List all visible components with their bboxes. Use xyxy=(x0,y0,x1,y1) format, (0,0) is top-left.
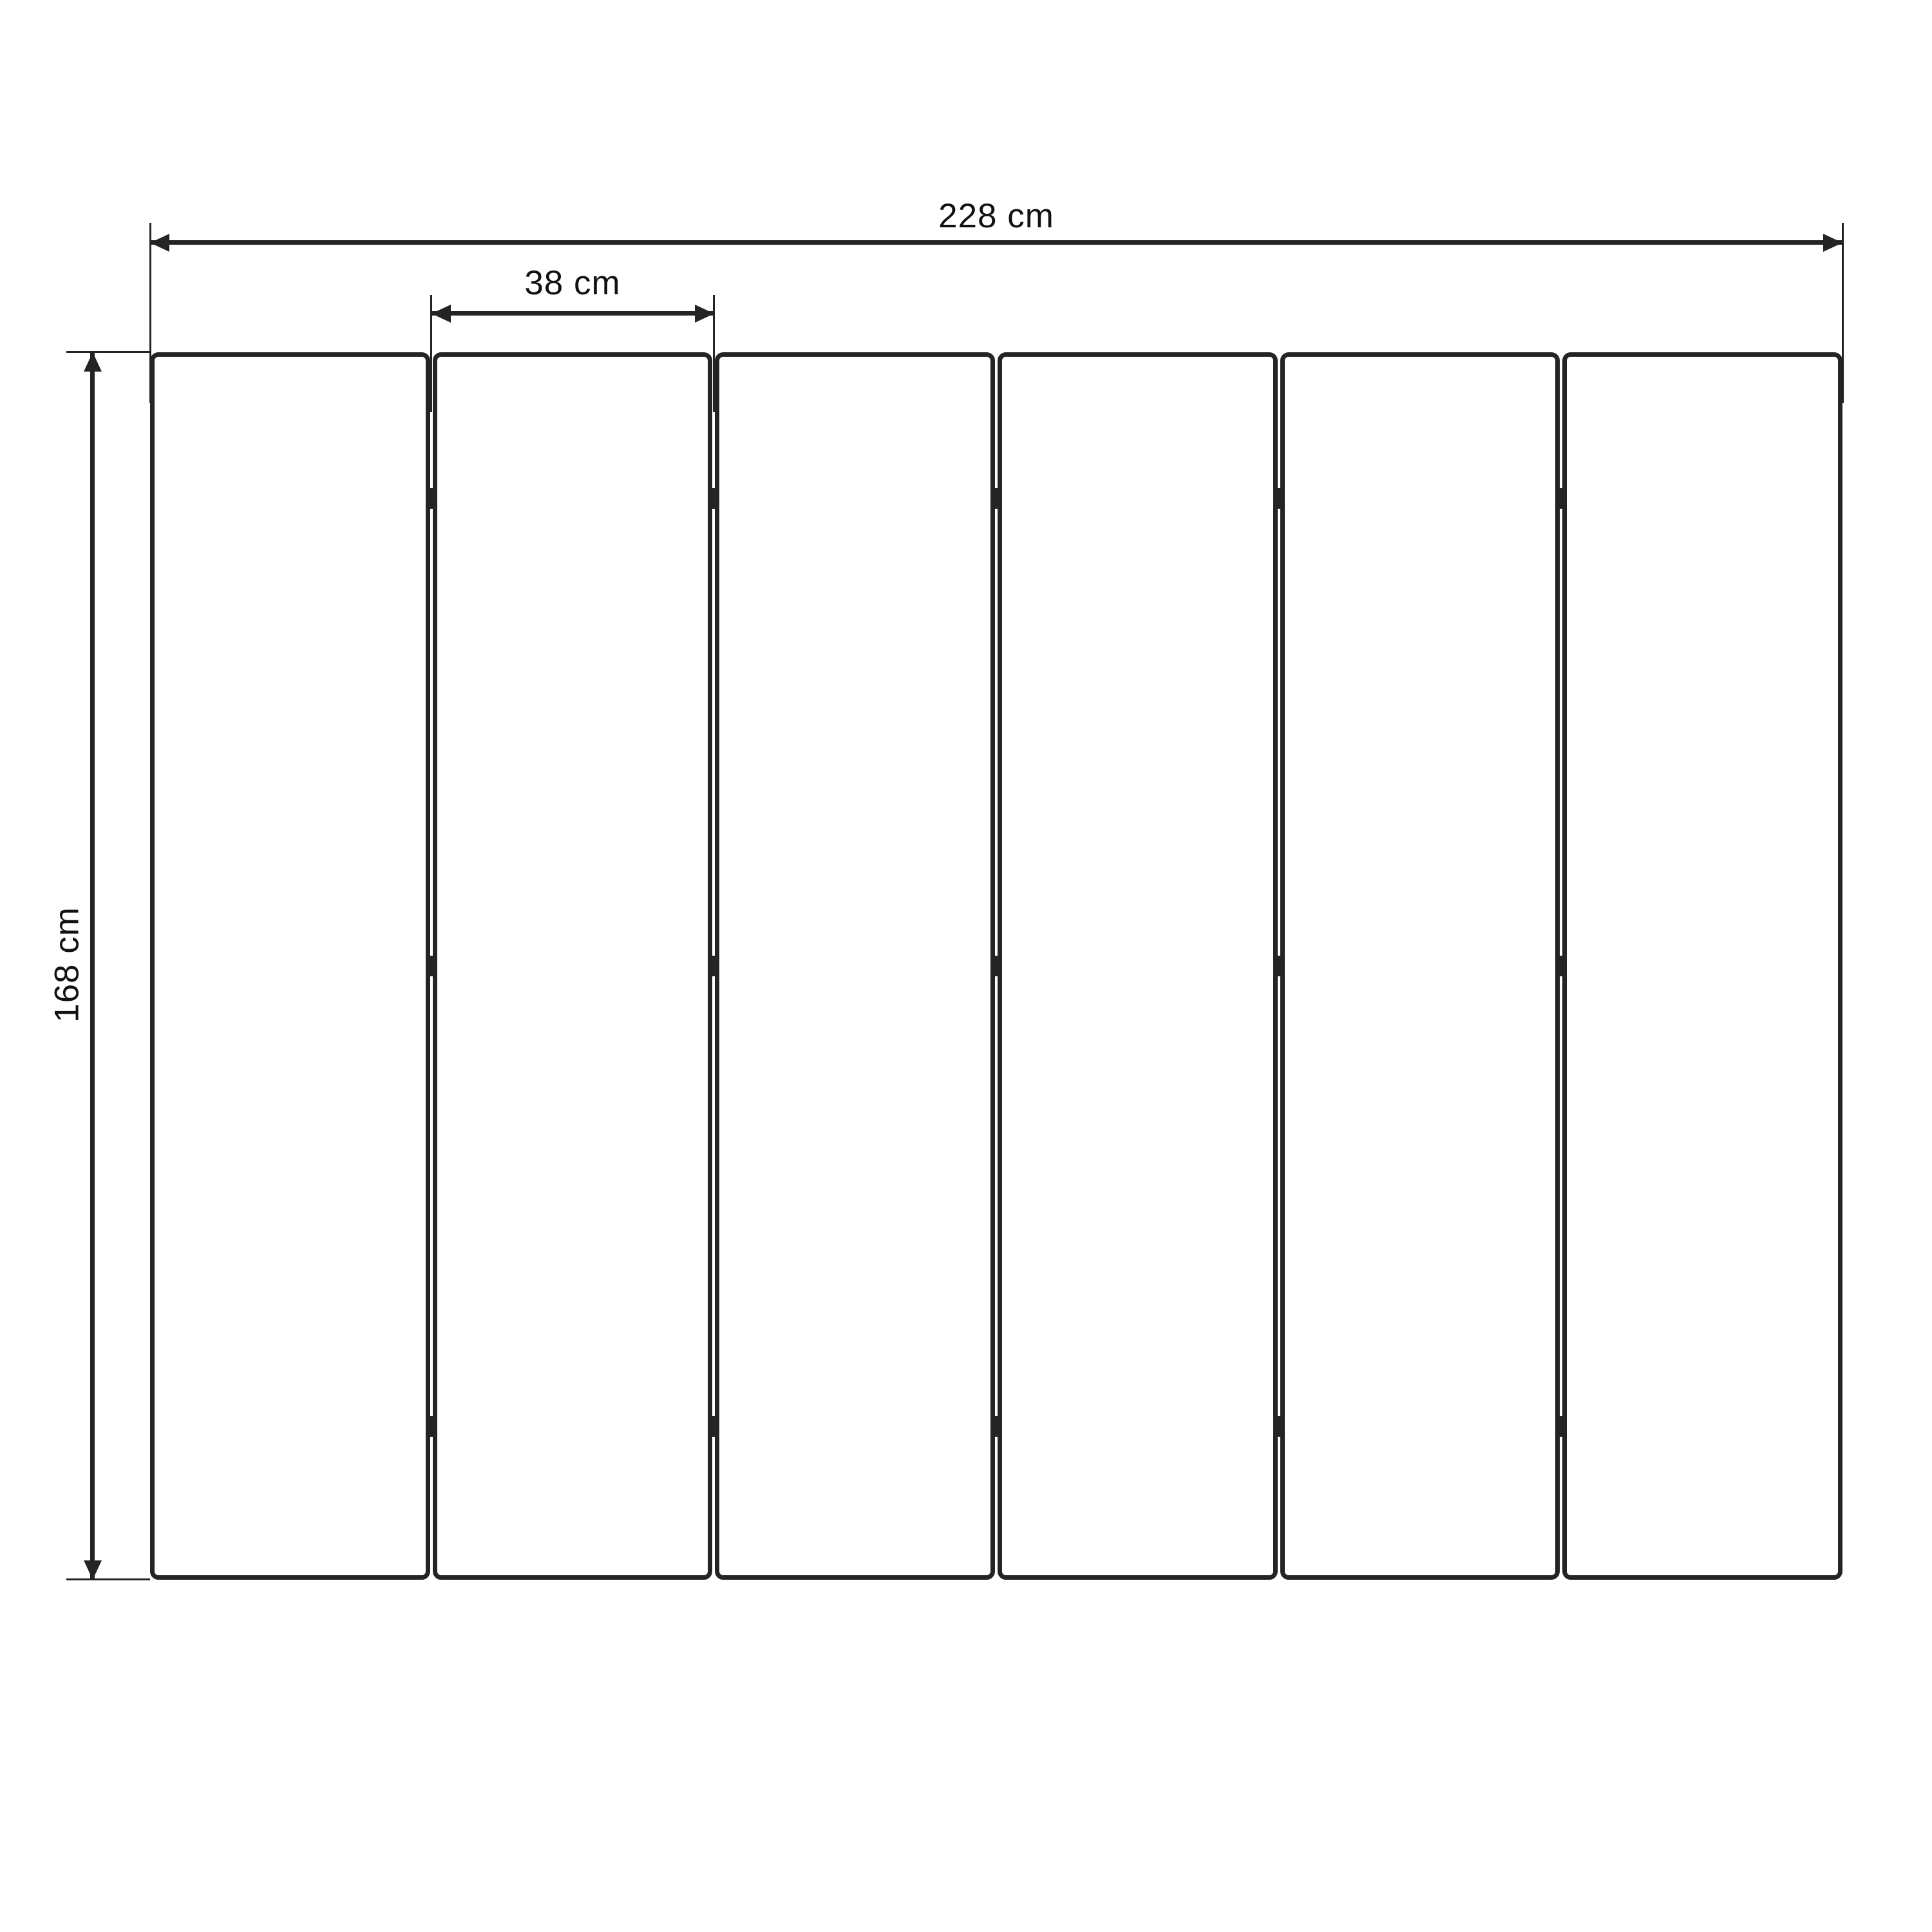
arrowhead-down-icon xyxy=(84,1560,102,1580)
extension-line-height-bottom xyxy=(66,1578,150,1580)
panel-width-dimension-line xyxy=(431,311,714,316)
panel xyxy=(998,352,1278,1580)
panel xyxy=(715,352,995,1580)
hinge xyxy=(992,488,1001,509)
hinge xyxy=(427,488,436,509)
height-dimension-line xyxy=(90,352,95,1580)
hinge xyxy=(992,1416,1001,1437)
panel xyxy=(433,352,713,1580)
height-label: 168 cm xyxy=(50,907,84,1023)
total-width-dimension-line xyxy=(150,240,1842,245)
arrowhead-up-icon xyxy=(84,352,102,372)
hinge xyxy=(1274,956,1283,976)
hinge xyxy=(992,956,1001,976)
hinge xyxy=(1557,488,1566,509)
hinge xyxy=(709,488,718,509)
panel xyxy=(1562,352,1842,1580)
arrowhead-right-icon xyxy=(1823,234,1842,252)
panel xyxy=(1280,352,1560,1580)
total-width-label: 228 cm xyxy=(938,199,1054,233)
dimension-diagram: 228 cm 38 cm 168 cm xyxy=(0,0,1932,1932)
panel-width-label: 38 cm xyxy=(524,266,620,300)
arrowhead-left-icon xyxy=(431,305,451,323)
extension-line-height-top xyxy=(66,351,150,353)
arrowhead-right-icon xyxy=(695,305,714,323)
hinge xyxy=(1557,1416,1566,1437)
arrowhead-left-icon xyxy=(150,234,169,252)
panel xyxy=(150,352,430,1580)
hinge xyxy=(427,1416,436,1437)
hinge xyxy=(709,956,718,976)
hinge xyxy=(709,1416,718,1437)
hinge xyxy=(427,956,436,976)
hinge xyxy=(1274,488,1283,509)
hinge xyxy=(1274,1416,1283,1437)
hinge xyxy=(1557,956,1566,976)
